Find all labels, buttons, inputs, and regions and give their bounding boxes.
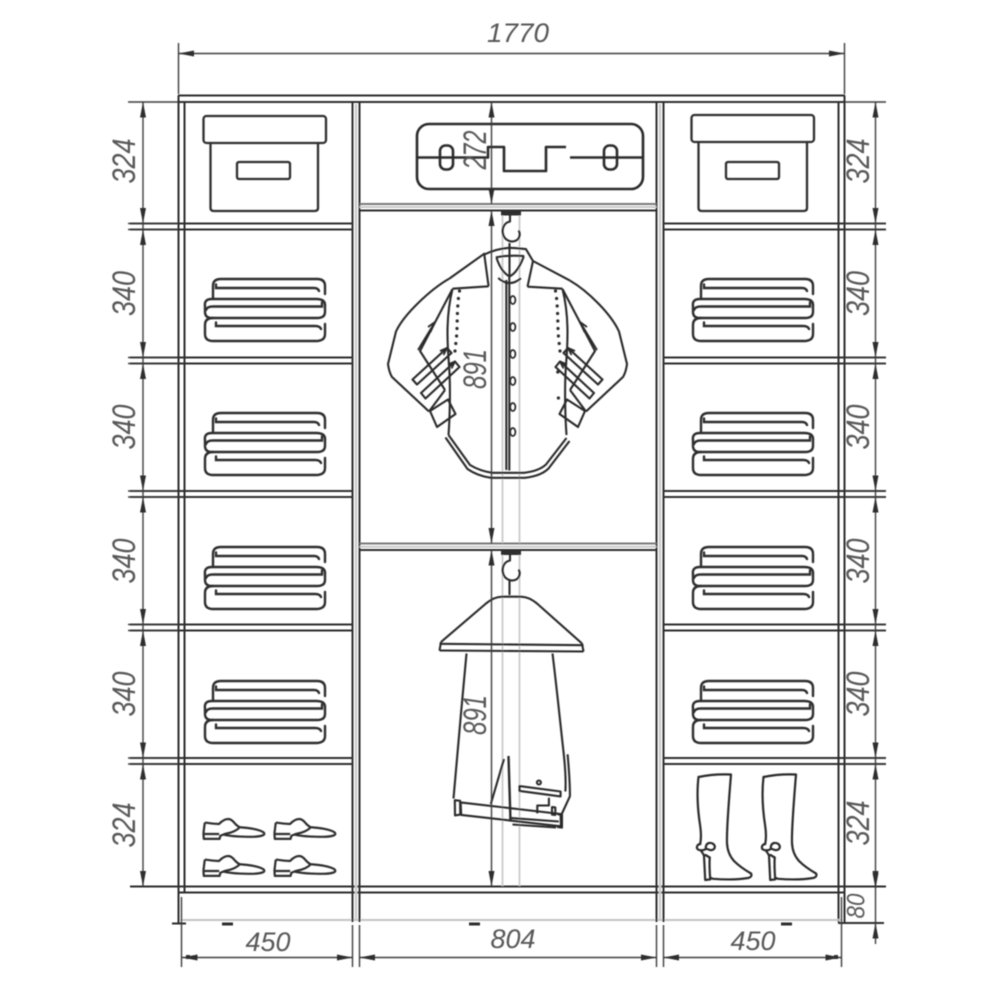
svg-text:324: 324 (106, 803, 142, 848)
svg-text:272: 272 (457, 130, 493, 170)
svg-text:804: 804 (491, 924, 536, 954)
svg-text:324: 324 (106, 139, 142, 184)
svg-text:340: 340 (106, 404, 142, 449)
svg-text:324: 324 (840, 801, 876, 846)
svg-text:891: 891 (457, 695, 493, 735)
svg-text:340: 340 (106, 671, 142, 716)
svg-text:340: 340 (840, 671, 876, 716)
svg-text:340: 340 (840, 538, 876, 583)
svg-text:340: 340 (106, 271, 142, 316)
svg-text:450: 450 (731, 926, 776, 956)
svg-text:80: 80 (843, 893, 871, 918)
svg-text:340: 340 (840, 271, 876, 316)
svg-text:450: 450 (246, 927, 291, 957)
svg-text:340: 340 (840, 404, 876, 449)
svg-text:324: 324 (840, 139, 876, 184)
svg-text:891: 891 (457, 349, 493, 389)
svg-text:1770: 1770 (487, 18, 549, 48)
svg-text:340: 340 (106, 538, 142, 583)
